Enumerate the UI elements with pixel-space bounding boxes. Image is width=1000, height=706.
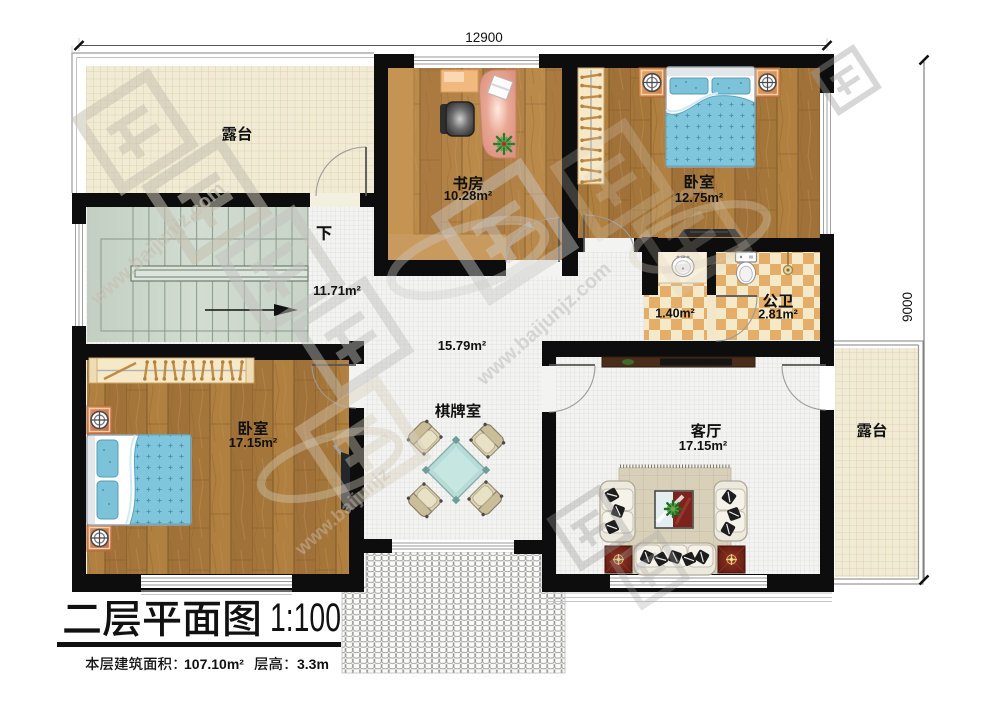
- svg-text:107.10m²: 107.10m²: [184, 656, 244, 672]
- svg-text:3.3m: 3.3m: [297, 656, 329, 672]
- svg-text:12.75m²: 12.75m²: [675, 190, 724, 205]
- svg-text:9000: 9000: [900, 292, 915, 322]
- svg-text:2.81m²: 2.81m²: [758, 308, 798, 322]
- svg-text:15.79m²: 15.79m²: [438, 338, 487, 353]
- svg-text:17.15m²: 17.15m²: [229, 435, 278, 450]
- svg-text:12900: 12900: [465, 30, 503, 45]
- svg-text:1:100: 1:100: [270, 596, 341, 640]
- svg-text:17.15m²: 17.15m²: [679, 438, 728, 453]
- svg-text:11.71m²: 11.71m²: [313, 283, 361, 298]
- svg-text:1.40m²: 1.40m²: [655, 307, 695, 321]
- svg-text:：: ：: [283, 657, 298, 673]
- svg-text:10.28m²: 10.28m²: [444, 188, 493, 203]
